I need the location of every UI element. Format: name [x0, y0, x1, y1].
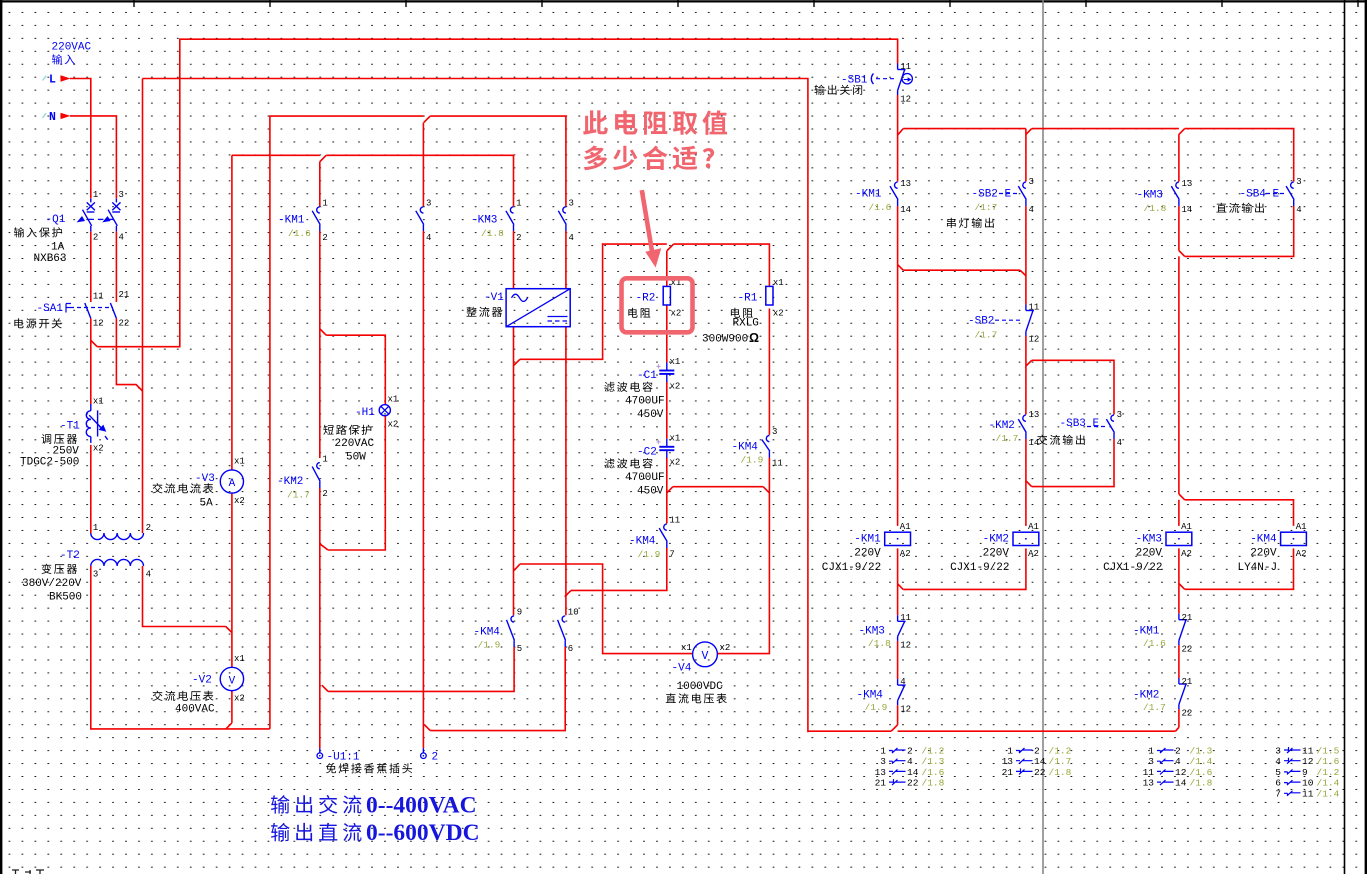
svg-text:22: 22: [1034, 767, 1046, 778]
svg-text:4: 4: [900, 677, 905, 687]
svg-text:-SB2 E: -SB2 E: [972, 189, 1012, 201]
svg-text:x2: x2: [671, 309, 682, 319]
svg-text:-R2: -R2: [636, 293, 656, 305]
svg-text:0--400VAC: 0--400VAC: [366, 793, 477, 819]
svg-text:-C2: -C2: [637, 447, 657, 459]
svg-text:/1.6: /1.6: [1143, 638, 1166, 649]
svg-text:-KM3: -KM3: [471, 215, 497, 227]
svg-text:22: 22: [907, 778, 919, 789]
svg-text:CJX1-9/22: CJX1-9/22: [822, 562, 881, 574]
svg-text:4: 4: [119, 233, 124, 243]
svg-text:2: 2: [1034, 746, 1040, 757]
svg-text:-KM1: -KM1: [855, 189, 882, 201]
svg-text:A1: A1: [1028, 522, 1039, 532]
svg-text:220V: 220V: [983, 548, 1010, 560]
svg-text:3: 3: [1275, 746, 1281, 757]
svg-text:3: 3: [1029, 177, 1034, 187]
svg-text:21: 21: [119, 290, 130, 300]
svg-text:6: 6: [1275, 778, 1281, 789]
svg-text:x1: x1: [670, 357, 681, 367]
svg-text:3: 3: [426, 199, 431, 209]
svg-text:14: 14: [900, 205, 911, 215]
svg-text:-Q1: -Q1: [46, 214, 66, 226]
svg-text:-KM1: -KM1: [854, 534, 881, 546]
svg-text:12: 12: [1029, 335, 1040, 345]
svg-text:x1: x1: [234, 654, 245, 664]
svg-text:1A: 1A: [51, 242, 65, 254]
svg-text:/1.8: /1.8: [1144, 203, 1167, 214]
svg-text:21: 21: [1182, 677, 1193, 687]
svg-text:A: A: [229, 478, 236, 490]
svg-text:/1.2: /1.2: [1049, 746, 1072, 757]
svg-text:3: 3: [880, 756, 886, 767]
svg-text:A1: A1: [1296, 522, 1307, 532]
svg-text:-KM3: -KM3: [859, 626, 885, 638]
svg-text:Ω: Ω: [749, 331, 759, 345]
svg-text:12: 12: [1175, 767, 1187, 778]
svg-text:RXLG: RXLG: [733, 318, 759, 330]
svg-text:/1.4: /1.4: [1190, 756, 1213, 767]
svg-text:A2: A2: [1028, 549, 1039, 559]
svg-text:1: 1: [322, 199, 327, 209]
svg-text:4: 4: [569, 233, 574, 243]
svg-text:-KM4: -KM4: [1250, 534, 1277, 546]
svg-text:3: 3: [772, 427, 777, 437]
svg-text:11: 11: [772, 459, 783, 469]
svg-text:12: 12: [900, 641, 911, 651]
svg-text:4: 4: [1296, 205, 1301, 215]
svg-text:21: 21: [875, 778, 887, 789]
svg-text:-KM1: -KM1: [278, 215, 305, 227]
svg-text:14: 14: [907, 767, 919, 778]
svg-text:-KM2: -KM2: [277, 476, 303, 488]
svg-text:-R1: -R1: [738, 293, 758, 305]
svg-text:13: 13: [1143, 778, 1155, 789]
svg-text:11: 11: [93, 292, 104, 302]
svg-text:x1: x1: [93, 397, 104, 407]
svg-text:/1.7: /1.7: [996, 433, 1019, 444]
svg-text:13: 13: [875, 767, 887, 778]
svg-text:x2: x2: [670, 458, 681, 468]
svg-text:1: 1: [93, 523, 98, 533]
svg-text:12: 12: [900, 705, 911, 715]
svg-text:10: 10: [568, 608, 579, 618]
svg-text:CJX1-9/22: CJX1-9/22: [1103, 562, 1162, 574]
svg-text:4700UF: 4700UF: [625, 396, 665, 408]
svg-text:7: 7: [1275, 788, 1281, 799]
svg-text:1: 1: [322, 455, 327, 465]
svg-text:220VAC: 220VAC: [335, 438, 375, 450]
svg-text:/1.9: /1.9: [741, 455, 764, 466]
svg-text:450V: 450V: [637, 409, 664, 421]
svg-text:-SA1: -SA1: [37, 303, 64, 315]
svg-text:-SB3 E: -SB3 E: [1060, 418, 1100, 430]
svg-text:22: 22: [1182, 709, 1193, 719]
svg-text:11: 11: [1302, 788, 1314, 799]
svg-text:10: 10: [1302, 778, 1314, 789]
svg-text:220V: 220V: [1136, 548, 1163, 560]
svg-text:1000VDC: 1000VDC: [677, 681, 724, 693]
svg-text:/1.2: /1.2: [922, 746, 945, 757]
svg-text:2: 2: [516, 233, 521, 243]
svg-text:3: 3: [1148, 756, 1154, 767]
svg-text:14: 14: [1034, 756, 1046, 767]
svg-text:0--600VDC: 0--600VDC: [366, 820, 480, 846]
svg-text:11: 11: [900, 62, 911, 72]
svg-text:x2: x2: [773, 309, 784, 319]
svg-text:-KM4: -KM4: [732, 442, 759, 454]
svg-text:A1: A1: [1181, 522, 1192, 532]
svg-text:/1.8: /1.8: [868, 638, 891, 649]
svg-text:4: 4: [146, 570, 151, 580]
svg-text:11: 11: [1143, 767, 1155, 778]
svg-text:/1.3: /1.3: [1190, 746, 1213, 757]
svg-text:V: V: [229, 676, 236, 688]
svg-text:4: 4: [1275, 756, 1281, 767]
svg-text:/1.6: /1.6: [1190, 767, 1213, 778]
svg-text:-SB4 E: -SB4 E: [1240, 189, 1280, 201]
svg-text:/1.6: /1.6: [922, 767, 945, 778]
svg-text:/1.6: /1.6: [1317, 756, 1340, 767]
svg-text:A1: A1: [900, 522, 911, 532]
svg-text:/1.3: /1.3: [922, 756, 945, 767]
svg-text:x2: x2: [388, 420, 399, 430]
svg-text:4: 4: [1175, 756, 1181, 767]
svg-text:4: 4: [1029, 205, 1034, 215]
svg-text:22: 22: [119, 319, 130, 329]
svg-text:x1: x1: [388, 395, 399, 405]
svg-text:9: 9: [517, 608, 522, 618]
svg-text:x2: x2: [234, 694, 245, 704]
svg-text:1: 1: [880, 746, 886, 757]
svg-text:-KM3: -KM3: [1137, 190, 1163, 202]
svg-text:6: 6: [568, 644, 573, 654]
svg-text:1: 1: [1148, 746, 1154, 757]
svg-text:/1.2: /1.2: [1317, 767, 1340, 778]
svg-text:N: N: [49, 111, 56, 124]
svg-text:2: 2: [432, 752, 439, 764]
svg-text:12: 12: [1302, 756, 1314, 767]
svg-text:220V: 220V: [854, 548, 881, 560]
svg-text:x2: x2: [93, 444, 104, 454]
svg-text:-KM2: -KM2: [989, 420, 1015, 432]
svg-text:21: 21: [1002, 767, 1014, 778]
svg-text:/1.8: /1.8: [1190, 778, 1213, 789]
svg-text:/1.4: /1.4: [1317, 778, 1340, 789]
svg-text:/1.4: /1.4: [1317, 788, 1340, 799]
svg-text:2: 2: [907, 746, 913, 757]
svg-text:13: 13: [1002, 756, 1014, 767]
svg-text:13: 13: [900, 179, 911, 189]
svg-text:5: 5: [517, 644, 522, 654]
svg-text:-U1:1: -U1:1: [327, 752, 360, 764]
svg-text:14: 14: [1029, 438, 1040, 448]
svg-text:22: 22: [1182, 645, 1193, 655]
svg-text:220V: 220V: [1250, 548, 1277, 560]
svg-text:13: 13: [1182, 179, 1193, 189]
svg-text:14: 14: [1175, 778, 1187, 789]
svg-text:21: 21: [1182, 613, 1193, 623]
svg-text:x2: x2: [720, 643, 731, 653]
svg-text:2: 2: [322, 489, 327, 499]
svg-text:50W: 50W: [346, 452, 366, 464]
svg-text:A2: A2: [900, 549, 911, 559]
svg-text:CJX1-9/22: CJX1-9/22: [950, 562, 1009, 574]
svg-text:2: 2: [146, 523, 151, 533]
svg-text:-T2: -T2: [60, 550, 80, 562]
svg-text:14: 14: [1182, 205, 1193, 215]
svg-text:2: 2: [93, 233, 98, 243]
svg-text:/1.6: /1.6: [869, 202, 892, 213]
svg-text:-H1: -H1: [355, 407, 375, 419]
svg-text:x1: x1: [234, 457, 245, 467]
svg-text:4700UF: 4700UF: [625, 472, 665, 484]
svg-text:-KM1: -KM1: [1133, 626, 1160, 638]
svg-text:/1:7: /1:7: [975, 202, 998, 213]
svg-text:300W900: 300W900: [702, 334, 748, 346]
svg-text:2: 2: [322, 233, 327, 243]
svg-text:NXB63: NXB63: [34, 253, 67, 265]
svg-text:V: V: [702, 650, 709, 663]
svg-text:-KM4: -KM4: [629, 536, 656, 548]
svg-text:3: 3: [119, 190, 124, 200]
svg-text:400VAC: 400VAC: [175, 704, 215, 716]
svg-text:11: 11: [900, 613, 911, 623]
svg-text:TDGC2-500: TDGC2-500: [20, 457, 79, 469]
svg-text:/1.7: /1.7: [975, 330, 998, 341]
svg-text:x1: x1: [681, 643, 692, 653]
svg-text:7: 7: [669, 550, 674, 560]
svg-text:5: 5: [1275, 767, 1281, 778]
svg-text:-SB2: -SB2: [968, 316, 994, 328]
svg-text:/1.8: /1.8: [481, 228, 504, 239]
svg-text:x2: x2: [670, 382, 681, 392]
svg-text:-KM2: -KM2: [1133, 690, 1159, 702]
svg-text:3: 3: [569, 199, 574, 209]
svg-text:-V1: -V1: [484, 292, 504, 304]
svg-text:/1.5: /1.5: [1317, 746, 1340, 757]
svg-text:-KM2: -KM2: [983, 534, 1009, 546]
svg-text:11: 11: [669, 516, 680, 526]
svg-text:/1.9: /1.9: [865, 702, 888, 713]
svg-text:1: 1: [93, 190, 98, 200]
svg-text:/1.9: /1.9: [638, 549, 661, 560]
svg-text:/1.7: /1.7: [287, 490, 310, 501]
svg-text:-V4: -V4: [672, 663, 692, 675]
svg-text:4: 4: [907, 756, 913, 767]
svg-text:12: 12: [93, 319, 104, 329]
svg-text:12: 12: [900, 95, 911, 105]
svg-text:x1: x1: [670, 434, 681, 444]
svg-text:-V2: -V2: [192, 675, 212, 687]
svg-text:4: 4: [1117, 438, 1122, 448]
svg-text:x1: x1: [773, 278, 784, 288]
svg-text:-C1: -C1: [637, 370, 657, 382]
svg-text:-KM4: -KM4: [474, 627, 501, 639]
svg-text:/1.7: /1.7: [1143, 702, 1166, 713]
svg-text:9: 9: [1302, 767, 1308, 778]
svg-text:/1.9: /1.9: [478, 640, 501, 651]
svg-text:-KM3: -KM3: [1136, 534, 1162, 546]
svg-text:LY4N-J: LY4N-J: [1237, 562, 1277, 574]
svg-text:13: 13: [1029, 410, 1040, 420]
svg-text:L: L: [49, 74, 56, 87]
svg-text:11: 11: [1302, 746, 1314, 757]
svg-text:380V/220V: 380V/220V: [22, 578, 82, 590]
svg-text:5A: 5A: [200, 498, 214, 510]
svg-text:-SB1: -SB1: [841, 75, 868, 87]
svg-text:/1.8: /1.8: [1049, 767, 1072, 778]
svg-text:220VAC: 220VAC: [52, 42, 92, 54]
svg-text:A2: A2: [1296, 549, 1307, 559]
svg-text:x2: x2: [234, 496, 245, 506]
svg-text:450V: 450V: [637, 486, 664, 498]
svg-text:-KM4: -KM4: [857, 690, 884, 702]
svg-text:A2: A2: [1181, 549, 1192, 559]
svg-text:BK500: BK500: [49, 592, 82, 604]
svg-text:3: 3: [1117, 410, 1122, 420]
svg-text:3: 3: [1296, 177, 1301, 187]
svg-text:4: 4: [426, 233, 431, 243]
svg-text:11: 11: [1029, 303, 1040, 313]
svg-text:1: 1: [516, 199, 521, 209]
svg-text:/1.7: /1.7: [1049, 756, 1072, 767]
svg-text:3: 3: [93, 570, 98, 580]
svg-text:-V3: -V3: [195, 473, 215, 485]
svg-text:/1.6: /1.6: [288, 228, 311, 239]
svg-text:/1.8: /1.8: [922, 778, 945, 789]
svg-text:2: 2: [1175, 746, 1181, 757]
svg-text:-T1: -T1: [60, 421, 80, 433]
svg-text:1: 1: [1007, 746, 1013, 757]
